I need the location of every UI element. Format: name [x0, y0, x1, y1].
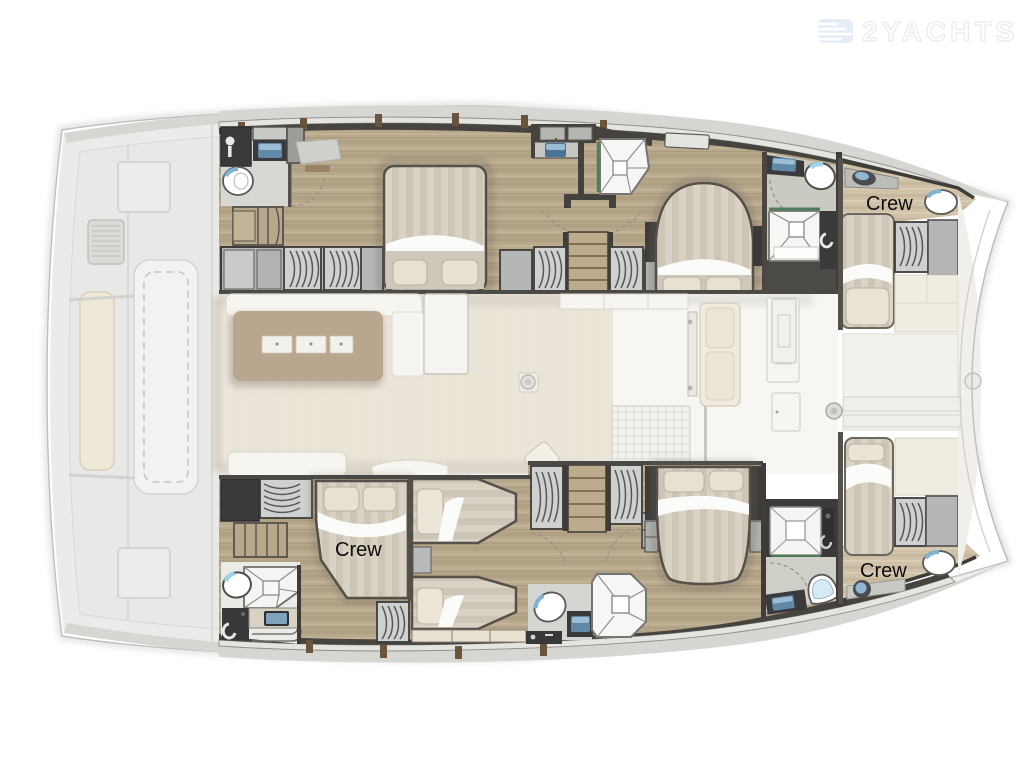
- svg-text:2YACHTS: 2YACHTS: [862, 16, 1018, 47]
- svg-text:Crew: Crew: [866, 193, 913, 215]
- svg-text:Crew: Crew: [860, 560, 907, 582]
- svg-text:Crew: Crew: [335, 539, 382, 561]
